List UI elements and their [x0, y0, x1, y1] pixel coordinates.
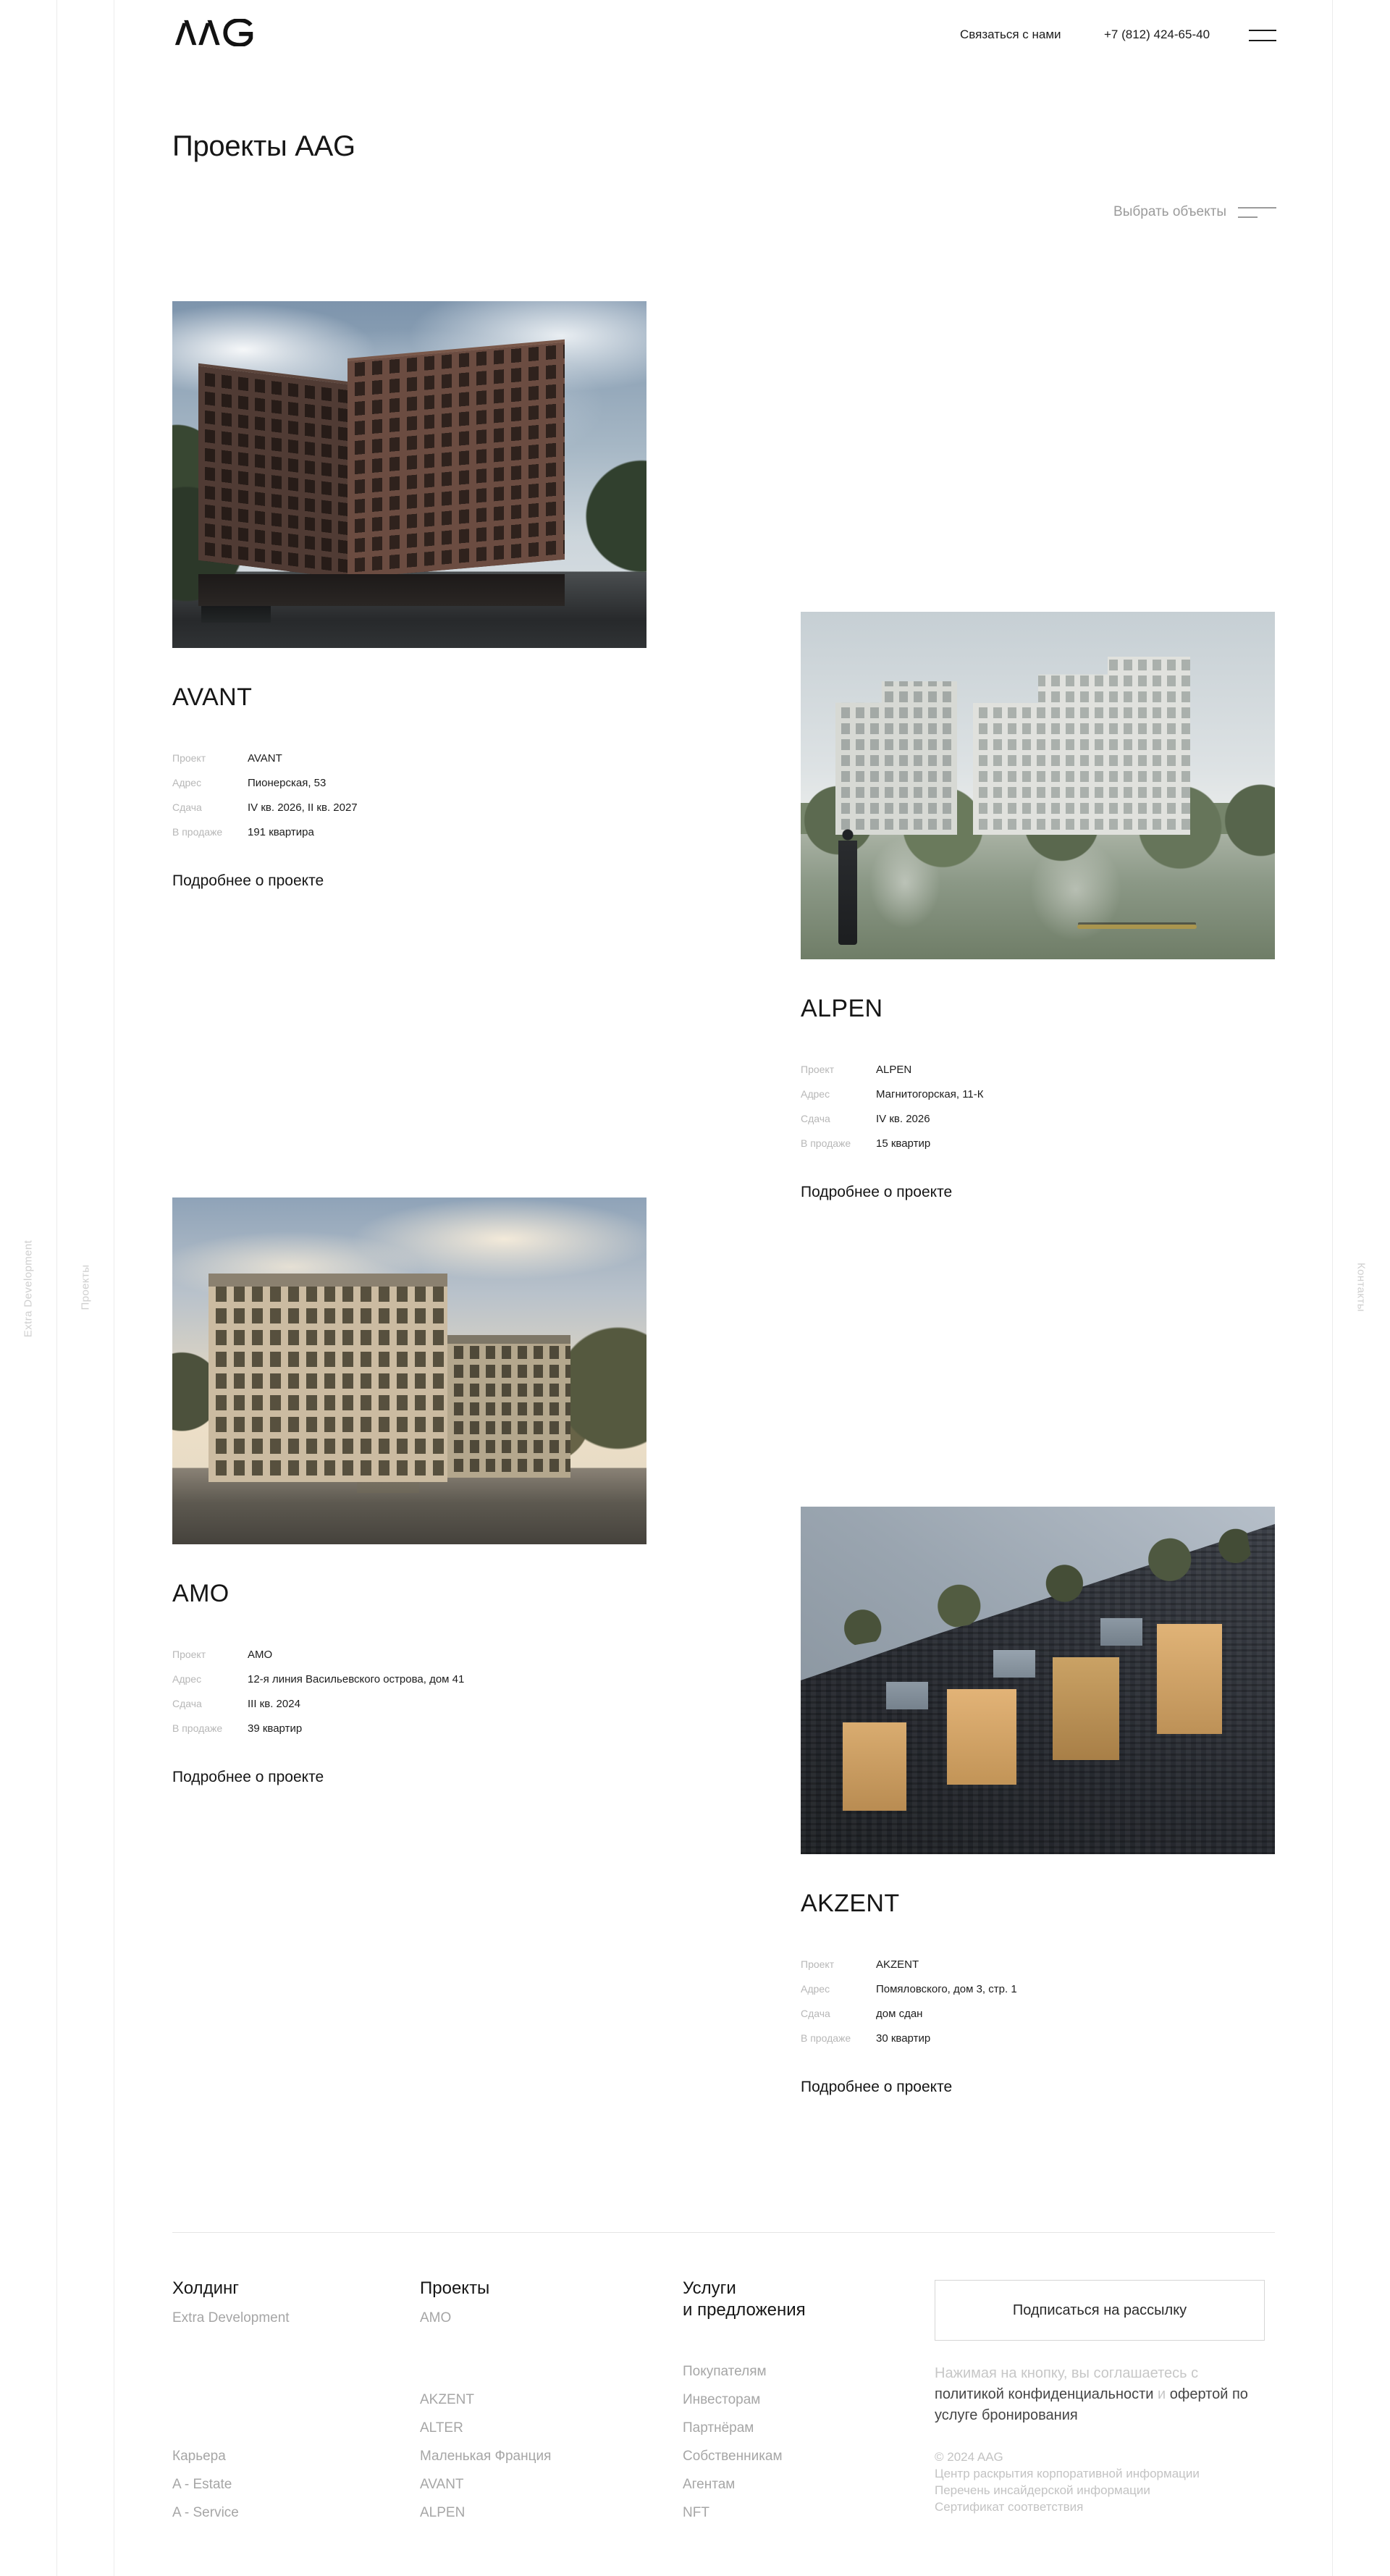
- project-title[interactable]: AMO: [172, 1579, 646, 1608]
- project-card-akzent: AKZENT Проект AKZENT Адрес Помяловского,…: [801, 1507, 1275, 2096]
- avant-building-left-face: [198, 363, 347, 578]
- spec-label: Проект: [801, 1064, 876, 1088]
- spec-row-address: Адрес Помяловского, дом 3, стр. 1: [801, 1983, 1275, 2008]
- spec-label: Проект: [172, 1649, 248, 1673]
- copyright: © 2024 AAG: [935, 2449, 1200, 2465]
- footer-heading-projects: Проекты: [420, 2278, 489, 2299]
- corporate-disclosure-link[interactable]: Центр раскрытия корпоративной информации: [935, 2465, 1200, 2482]
- spec-row-project: Проект ALPEN: [801, 1064, 1275, 1088]
- footer-heading-services: Услуги и предложения: [683, 2278, 806, 2321]
- spec-label: Сдача: [801, 1113, 876, 1137]
- footer-link-malenkaya-frantsiya[interactable]: Маленькая Франция: [420, 2448, 551, 2465]
- rail-link-contacts[interactable]: Контакты: [1355, 1263, 1368, 1312]
- alpen-person-silhouette: [838, 828, 857, 945]
- spec-label: Проект: [801, 1958, 876, 1983]
- spec-row-project: Проект AVANT: [172, 752, 646, 777]
- alpen-rowing-boat: [1077, 925, 1197, 929]
- spec-label: В продаже: [801, 1137, 876, 1162]
- spec-row-on-sale: В продаже 30 квартир: [801, 2032, 1275, 2057]
- project-spec-table: Проект AMO Адрес 12-я линия Васильевског…: [172, 1649, 646, 1747]
- footer-link-nft[interactable]: NFT: [683, 2504, 783, 2521]
- spec-value: 12-я линия Васильевского острова, дом 41: [248, 1673, 464, 1698]
- left-rail-divider-2: [114, 0, 114, 2576]
- project-card-amo: AMO Проект AMO Адрес 12-я линия Васильев…: [172, 1197, 646, 1786]
- spec-label: В продаже: [801, 2032, 876, 2057]
- left-rail-divider-1: [56, 0, 57, 2576]
- subscribe-newsletter-button[interactable]: Подписаться на рассылку: [935, 2280, 1265, 2341]
- menu-icon[interactable]: [1249, 30, 1276, 41]
- legal-prefix: Нажимая на кнопку, вы соглашаетесь с: [935, 2365, 1198, 2381]
- spec-label: Адрес: [172, 1673, 248, 1698]
- project-title[interactable]: AVANT: [172, 683, 646, 712]
- spec-row-on-sale: В продаже 15 квартир: [801, 1137, 1275, 1162]
- footer-link-akzent[interactable]: AKZENT: [420, 2391, 551, 2408]
- project-title[interactable]: AKZENT: [801, 1889, 1275, 1918]
- spec-label: В продаже: [172, 1722, 248, 1747]
- spec-row-project: Проект AKZENT: [801, 1958, 1275, 1983]
- project-title[interactable]: ALPEN: [801, 994, 1275, 1023]
- amo-side-building: [447, 1335, 570, 1478]
- spec-row-completion: Сдача IV кв. 2026, II кв. 2027: [172, 801, 646, 826]
- spec-value: 30 квартир: [876, 2032, 930, 2057]
- footer-link-agents[interactable]: Агентам: [683, 2476, 783, 2493]
- spec-value: AVANT: [248, 752, 282, 777]
- footer-link-alpen[interactable]: ALPEN: [420, 2504, 551, 2521]
- spec-label: Сдача: [801, 2008, 876, 2032]
- footer-link-a-service[interactable]: A - Service: [172, 2504, 239, 2521]
- footer-heading-holding: Холдинг: [172, 2278, 239, 2299]
- spec-value: 15 квартир: [876, 1137, 930, 1162]
- site-footer: Холдинг Проекты Услуги и предложения Ext…: [172, 2232, 1275, 2576]
- project-spec-table: Проект ALPEN Адрес Магнитогорская, 11-К …: [801, 1064, 1275, 1162]
- spec-label: Сдача: [172, 1698, 248, 1722]
- page-title: Проекты AAG: [172, 130, 355, 163]
- spec-value: Магнитогорская, 11-К: [876, 1088, 984, 1113]
- project-card-avant: AVANT Проект AVANT Адрес Пионерская, 53 …: [172, 301, 646, 890]
- spec-value: III кв. 2024: [248, 1698, 300, 1722]
- spec-row-address: Адрес 12-я линия Васильевского острова, …: [172, 1673, 646, 1698]
- alpen-building-right: [973, 657, 1190, 835]
- spec-label: Сдача: [172, 801, 248, 826]
- project-details-link[interactable]: Подробнее о проекте: [801, 2079, 952, 2096]
- spec-label: Проект: [172, 752, 248, 777]
- amo-main-building: [208, 1274, 447, 1482]
- right-rail-divider: [1332, 0, 1333, 2576]
- project-details-link[interactable]: Подробнее о проекте: [172, 1769, 324, 1786]
- spec-row-completion: Сдача IV кв. 2026: [801, 1113, 1275, 1137]
- filter-label: Выбрать объекты: [1113, 203, 1226, 221]
- insider-info-link[interactable]: Перечень инсайдерской информации: [935, 2482, 1200, 2499]
- spec-value: Помяловского, дом 3, стр. 1: [876, 1983, 1017, 2008]
- spec-row-address: Адрес Пионерская, 53: [172, 777, 646, 801]
- footer-link-amo[interactable]: AMO: [420, 2310, 451, 2326]
- footer-link-career[interactable]: Карьера: [172, 2448, 239, 2465]
- spec-row-project: Проект AMO: [172, 1649, 646, 1673]
- project-spec-table: Проект AVANT Адрес Пионерская, 53 Сдача …: [172, 752, 646, 851]
- legal-bottom-block: © 2024 AAG Центр раскрытия корпоративной…: [935, 2449, 1200, 2515]
- project-details-link[interactable]: Подробнее о проекте: [801, 1184, 952, 1201]
- rail-link-projects[interactable]: Проекты: [80, 1265, 92, 1310]
- spec-value: IV кв. 2026: [876, 1113, 930, 1137]
- spec-label: В продаже: [172, 826, 248, 851]
- legal-consent-text: Нажимая на кнопку, вы соглашаетесь с пол…: [935, 2363, 1265, 2426]
- project-card-alpen: ALPEN Проект ALPEN Адрес Магнитогорская,…: [801, 612, 1275, 1201]
- footer-link-avant[interactable]: AVANT: [420, 2476, 551, 2493]
- avant-project-photo[interactable]: [172, 301, 646, 648]
- avant-building-base: [198, 574, 565, 606]
- spec-value: дом сдан: [876, 2008, 922, 2032]
- spec-label: Адрес: [172, 777, 248, 801]
- projects-page: Extra Development Проекты Контакты Связа…: [0, 0, 1390, 2576]
- spec-row-address: Адрес Магнитогорская, 11-К: [801, 1088, 1275, 1113]
- phone-link[interactable]: +7 (812) 424-65-40: [1104, 26, 1210, 43]
- amo-project-photo[interactable]: [172, 1197, 646, 1544]
- privacy-policy-link[interactable]: политикой конфиденциальности: [935, 2386, 1153, 2402]
- footer-link-alter[interactable]: ALTER: [420, 2420, 551, 2436]
- select-objects-filter[interactable]: Выбрать объекты: [1113, 203, 1276, 221]
- filter-icon: [1238, 207, 1276, 219]
- akzent-project-photo[interactable]: [801, 1507, 1275, 1854]
- spec-label: Адрес: [801, 1088, 876, 1113]
- alpen-project-photo[interactable]: [801, 612, 1275, 959]
- contact-us-link[interactable]: Связаться с нами: [960, 26, 1061, 43]
- certificate-link[interactable]: Сертификат соответствия: [935, 2499, 1200, 2515]
- avant-building-right-face: [347, 340, 565, 578]
- spec-row-completion: Сдача III кв. 2024: [172, 1698, 646, 1722]
- project-details-link[interactable]: Подробнее о проекте: [172, 872, 324, 890]
- project-spec-table: Проект AKZENT Адрес Помяловского, дом 3,…: [801, 1958, 1275, 2057]
- spec-value: AKZENT: [876, 1958, 919, 1983]
- spec-value: 39 квартир: [248, 1722, 302, 1747]
- spec-row-on-sale: В продаже 191 квартира: [172, 826, 646, 851]
- spec-row-completion: Сдача дом сдан: [801, 2008, 1275, 2032]
- spec-value: 191 квартира: [248, 826, 314, 851]
- footer-link-investors[interactable]: Инвесторам: [683, 2391, 783, 2408]
- aag-logo[interactable]: [172, 19, 258, 46]
- spec-label: Адрес: [801, 1983, 876, 2008]
- spec-value: IV кв. 2026, II кв. 2027: [248, 801, 358, 826]
- footer-link-partners[interactable]: Партнёрам: [683, 2420, 783, 2436]
- footer-link-a-estate[interactable]: A - Estate: [172, 2476, 239, 2493]
- spec-value: AMO: [248, 1649, 272, 1673]
- legal-conjunction: и: [1158, 2386, 1166, 2402]
- spec-value: Пионерская, 53: [248, 777, 326, 801]
- rail-link-extra-development[interactable]: Extra Development: [22, 1240, 35, 1337]
- footer-link-owners[interactable]: Собственникам: [683, 2448, 783, 2465]
- alpen-building-left: [835, 681, 957, 835]
- footer-link-buyers[interactable]: Покупателям: [683, 2363, 783, 2380]
- spec-value: ALPEN: [876, 1064, 911, 1088]
- footer-link-extra-development[interactable]: Extra Development: [172, 2310, 290, 2326]
- spec-row-on-sale: В продаже 39 квартир: [172, 1722, 646, 1747]
